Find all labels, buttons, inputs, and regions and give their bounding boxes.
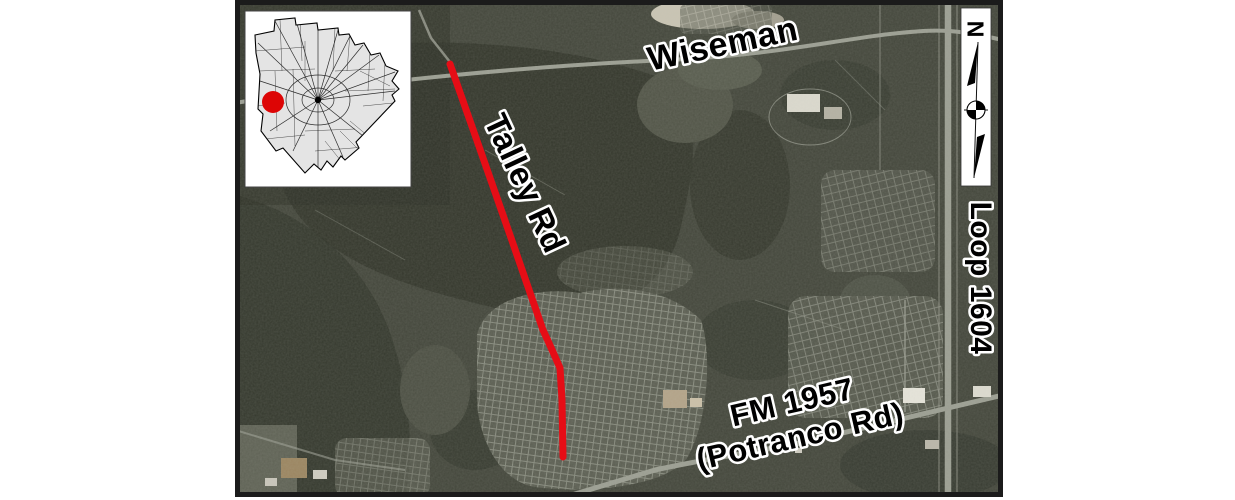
north-letter: N (963, 21, 989, 38)
screenshot-canvas: Wiseman Talley Rd FM 1957 (Potranco Rd) … (0, 0, 1235, 500)
aerial-map: Wiseman Talley Rd FM 1957 (Potranco Rd) … (235, 0, 1003, 497)
inset-locator-map (245, 11, 411, 187)
loop-1604-label: Loop 1604 (964, 202, 997, 355)
north-arrow: N (961, 8, 991, 186)
project-location-marker (262, 91, 284, 113)
map-frame: Wiseman Talley Rd FM 1957 (Potranco Rd) … (235, 0, 1003, 497)
